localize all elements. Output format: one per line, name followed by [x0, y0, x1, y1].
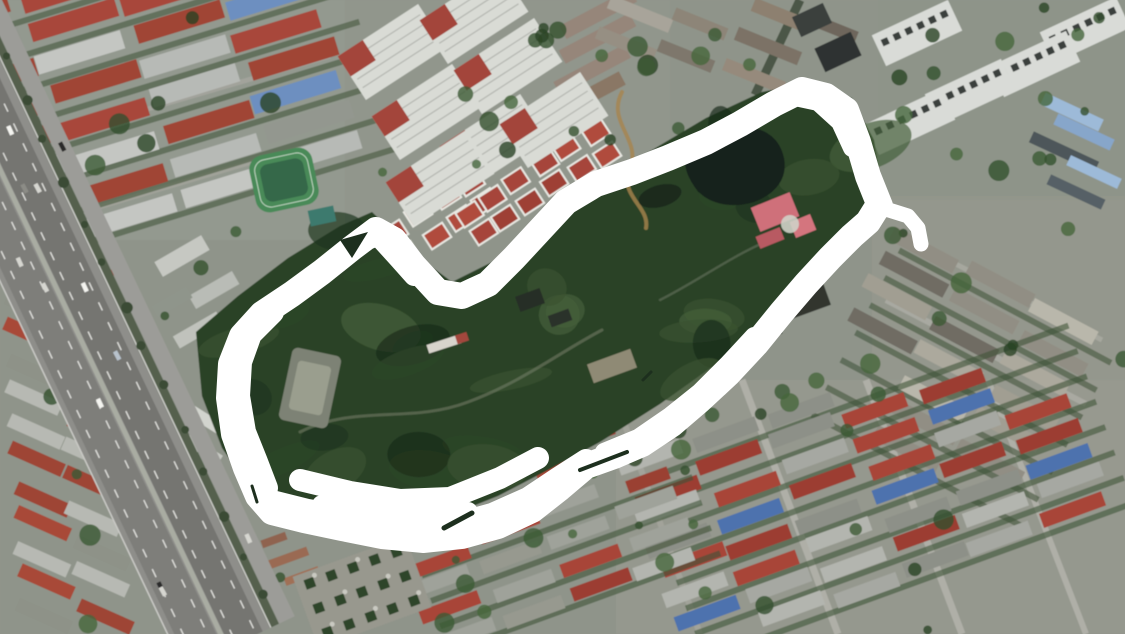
tree-canopy [871, 387, 886, 402]
tree-canopy [927, 66, 941, 80]
tree-canopy [479, 112, 499, 132]
tree-canopy [79, 524, 100, 545]
verge-tree [23, 95, 33, 105]
tree-canopy [995, 32, 1014, 51]
tree-canopy [137, 134, 155, 152]
tree-canopy [186, 11, 199, 24]
tree-canopy [1044, 153, 1056, 165]
tree-canopy [688, 519, 698, 529]
verge-tree [81, 221, 88, 228]
tree-canopy [160, 311, 169, 320]
tree-canopy [434, 613, 454, 633]
tree-canopy [698, 586, 711, 599]
tree-canopy [743, 58, 756, 71]
tree-canopy [691, 46, 710, 65]
tree-canopy [950, 148, 963, 161]
tree-canopy [635, 521, 643, 529]
verge-tree [38, 135, 46, 143]
tree-canopy [755, 408, 767, 420]
tree-canopy [472, 160, 481, 169]
tree-canopy [680, 465, 690, 475]
tree-canopy [637, 58, 655, 76]
tree-canopy [755, 596, 773, 614]
tree-canopy [1093, 12, 1105, 24]
tree-canopy [951, 272, 972, 293]
tree-canopy [378, 168, 387, 177]
tree-canopy [932, 311, 947, 326]
tree-canopy [72, 469, 82, 479]
tree-canopy [568, 529, 577, 538]
tree-canopy [452, 556, 460, 564]
verge-tree [199, 467, 207, 475]
annotated-satellite-map [0, 0, 1125, 634]
tree-canopy [808, 373, 824, 389]
satellite-base-layer [0, 0, 1125, 634]
satellite-map-canvas [0, 0, 1125, 634]
tree-canopy [884, 227, 902, 245]
tree-canopy [458, 86, 474, 102]
tree-canopy [1039, 2, 1050, 13]
tree-canopy [708, 28, 722, 42]
verge-tree [219, 511, 230, 522]
tree-canopy [595, 49, 608, 62]
tree-canopy [109, 113, 130, 134]
tree-canopy [850, 523, 862, 535]
tree-canopy [1038, 91, 1053, 106]
verge-tree [98, 258, 106, 266]
tree-canopy [504, 95, 518, 109]
tree-canopy [477, 605, 491, 619]
tree-canopy [1061, 222, 1075, 236]
verge-tree [240, 553, 247, 560]
verge-tree [159, 380, 168, 389]
tree-canopy [549, 22, 566, 39]
tree-canopy [1008, 340, 1019, 351]
tree-canopy [193, 260, 208, 275]
pavilion-courtyard [781, 215, 799, 233]
tree-canopy [840, 424, 853, 437]
tree-canopy [923, 626, 932, 634]
verge-tree [181, 426, 189, 434]
tree-canopy [655, 553, 674, 572]
tree-canopy [260, 92, 281, 113]
tree-canopy [499, 141, 516, 158]
verge-tree [258, 590, 267, 599]
tree-canopy [535, 29, 549, 43]
tree-canopy [230, 226, 241, 237]
tree-canopy [891, 69, 907, 85]
tree-canopy [568, 126, 579, 137]
tree-canopy [524, 528, 544, 548]
verge-tree [121, 302, 133, 314]
tree-canopy [988, 160, 1009, 181]
tree-canopy [1080, 107, 1089, 116]
tree-canopy [933, 509, 953, 529]
tree-canopy [604, 134, 616, 146]
tree-canopy [456, 574, 475, 593]
tree-canopy [85, 155, 106, 176]
tree-canopy [908, 563, 921, 576]
tree-canopy [79, 615, 98, 634]
tree-canopy [671, 439, 691, 459]
verge-tree [3, 52, 10, 59]
tree-canopy [860, 353, 880, 373]
verge-tree [136, 341, 145, 350]
tree-canopy [925, 28, 940, 43]
tree-canopy [627, 36, 648, 57]
tree-canopy [151, 96, 166, 111]
tree-canopy [780, 393, 799, 412]
tree-canopy [1071, 28, 1084, 41]
verge-tree [58, 177, 69, 188]
